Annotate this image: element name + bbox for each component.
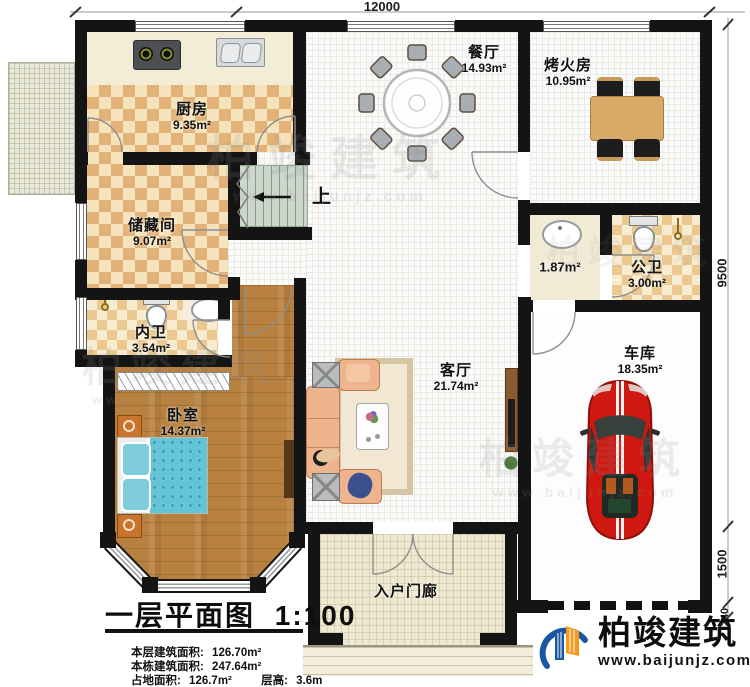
title-text: 一层平面图	[105, 600, 255, 631]
wall	[245, 20, 347, 32]
wall	[308, 633, 343, 645]
pull-lamp-icon	[101, 303, 109, 311]
room-name: 客厅	[440, 363, 472, 380]
room-area: 14.37m²	[161, 424, 206, 438]
sink-basin	[241, 43, 263, 63]
person-figure	[345, 470, 376, 501]
wall	[518, 32, 530, 152]
dimension-9500: 9500	[715, 259, 730, 288]
nightstand-icon	[117, 415, 142, 439]
wall	[218, 300, 230, 320]
brand-name: 柏竣建筑	[598, 616, 750, 649]
room-area: 10.95m²	[546, 74, 591, 88]
wall	[518, 297, 531, 613]
room-label-inner-bath: 内卫 3.54m²	[132, 325, 170, 355]
tv-icon	[508, 399, 515, 447]
table-dot	[366, 437, 371, 442]
window	[76, 297, 87, 350]
stat-row: 占地面积: 126.7m² 层高: 3.6m	[131, 672, 322, 687]
up-text: 上	[312, 188, 332, 209]
room-area: 3.54m²	[132, 341, 170, 355]
window	[543, 21, 650, 32]
washbasin-icon	[542, 220, 582, 249]
wall	[700, 20, 712, 613]
room-area: 9.07m²	[133, 234, 171, 248]
wall	[75, 152, 88, 165]
wall	[75, 288, 230, 300]
chair-icon	[634, 139, 660, 161]
wall	[75, 20, 87, 203]
stairs-up-label: 上	[312, 188, 332, 209]
dimension-top: 12000	[364, 0, 400, 14]
burner-icon	[160, 47, 174, 61]
pull-cord	[677, 218, 679, 232]
stat-label: 层高:	[261, 675, 288, 687]
stat-value: 126.7m²	[189, 675, 232, 687]
armchair	[338, 359, 380, 391]
title-underline	[105, 629, 303, 633]
coffee-table	[356, 403, 389, 450]
stairs	[230, 165, 308, 227]
room-label-porch: 入户门廊	[374, 584, 438, 601]
pull-lamp-icon	[674, 232, 682, 240]
room-name: 卧室	[167, 408, 199, 425]
dimension-1500: 1500	[715, 550, 730, 579]
tv-cabinet	[505, 368, 518, 452]
armchair	[338, 469, 382, 504]
room-label-bedroom: 卧室 14.37m²	[161, 408, 206, 438]
sink-basin	[220, 43, 242, 63]
wall	[306, 522, 373, 534]
flower-decor	[363, 410, 380, 425]
faucet-dot	[558, 226, 562, 230]
brand-text-block: 柏竣建筑 www.baijunjz.com	[598, 616, 750, 669]
side-table	[312, 473, 340, 501]
wall	[293, 32, 306, 152]
lamp-icon	[123, 420, 135, 432]
stove-icon	[133, 40, 181, 70]
wall	[75, 355, 232, 367]
wall	[575, 300, 712, 312]
room-label-public-bath: 公卫 3.00m²	[628, 260, 666, 290]
room-area: 9.35m²	[173, 118, 211, 132]
pillow	[121, 477, 151, 512]
side-table	[312, 362, 340, 388]
garage-door	[548, 601, 688, 610]
wall	[295, 152, 310, 165]
room-name: 入户门廊	[374, 584, 438, 601]
room-label-storage: 储藏间 9.07m²	[128, 218, 176, 248]
room-area: 1.87m²	[539, 261, 580, 276]
room-area: 14.93m²	[462, 61, 507, 75]
table-dot	[375, 434, 380, 439]
plan-title: 一层平面图 1:100	[105, 594, 356, 634]
wardrobe	[117, 372, 230, 391]
terrace-floor	[8, 62, 75, 195]
burner-icon	[139, 47, 153, 61]
chair-icon	[597, 139, 623, 161]
stat-label: 占地面积:	[131, 675, 181, 687]
room-name: 车库	[624, 346, 656, 363]
room-name: 内卫	[135, 325, 167, 342]
room-label-dining: 餐厅 14.93m²	[462, 45, 507, 75]
window	[135, 21, 245, 32]
nightstand-icon	[117, 514, 142, 538]
room-name: 餐厅	[468, 45, 500, 62]
wall	[517, 600, 548, 613]
brand-url: www.baijunjz.com	[598, 652, 750, 669]
cushion	[346, 364, 370, 382]
car-icon	[576, 378, 664, 542]
wall	[505, 534, 517, 645]
room-area: 3.00m²	[628, 276, 666, 290]
room-area: 21.74m²	[434, 379, 479, 393]
wall	[455, 20, 543, 32]
kitchen-sink-icon	[216, 38, 265, 67]
window	[347, 21, 455, 32]
wall	[688, 600, 712, 613]
wall	[453, 522, 518, 534]
pillow	[121, 442, 151, 477]
brand-logo-icon	[536, 616, 590, 676]
lamp-icon	[123, 519, 135, 531]
room-name: 烤火房	[544, 58, 592, 75]
room-label-wash-hall: 1.87m²	[539, 261, 580, 276]
room-label-living: 客厅 21.74m²	[434, 363, 479, 393]
window	[76, 203, 87, 260]
bed	[117, 437, 208, 514]
fire-room-table	[590, 96, 664, 141]
scale-text: 1:100	[275, 600, 357, 631]
plant-icon	[504, 455, 518, 471]
room-name: 厨房	[176, 102, 208, 119]
room-label-garage: 车库 18.35m²	[618, 346, 663, 376]
wall	[294, 278, 306, 534]
room-label-kitchen: 厨房 9.35m²	[173, 102, 211, 132]
bedroom-tv-stand	[284, 440, 294, 498]
wall	[480, 633, 517, 645]
room-name: 储藏间	[128, 218, 176, 235]
room-name: 公卫	[631, 260, 663, 277]
wall	[228, 227, 312, 240]
room-area: 18.35m²	[618, 362, 663, 376]
room-label-fire-room: 烤火房 10.95m²	[544, 58, 592, 88]
bedroom-corridor-floor	[232, 285, 294, 377]
wall	[518, 300, 533, 312]
toilet-tank	[629, 216, 658, 226]
wall	[600, 215, 612, 255]
wall	[103, 367, 115, 540]
brand-logo: 柏竣建筑 www.baijunjz.com	[536, 616, 750, 676]
wall	[518, 203, 712, 215]
wall	[228, 152, 240, 230]
floor-plan: 厨房 9.35m² 餐厅 14.93m² 烤火房 10.95m² 储藏间 9.0…	[0, 0, 750, 687]
porch-steps	[303, 645, 533, 676]
bed-duvet	[147, 438, 207, 513]
stat-value: 3.6m	[296, 675, 322, 687]
